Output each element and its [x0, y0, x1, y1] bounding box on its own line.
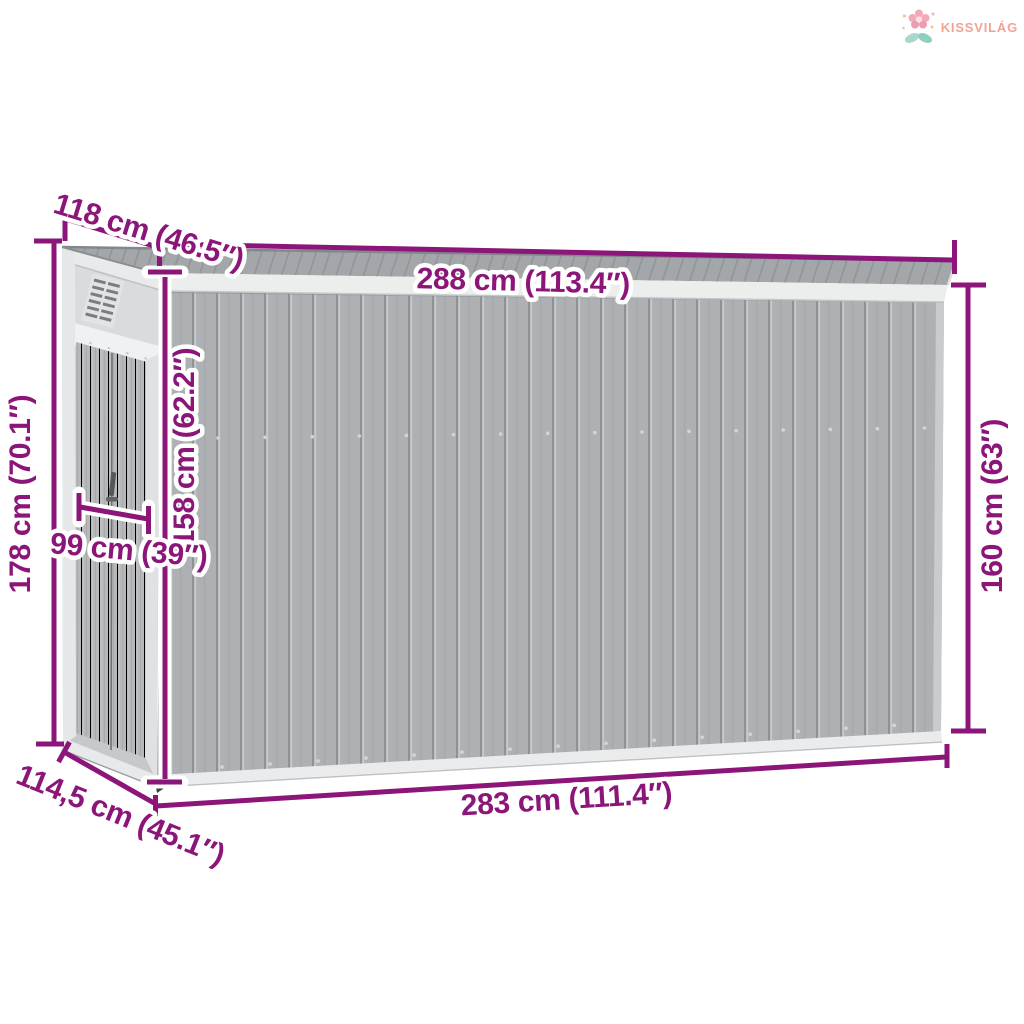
brand-name: KISSVILÁG: [941, 20, 1018, 35]
dimension-label-back-height: 178 cm (70.1″): [4, 395, 37, 594]
brand-logo: KISSVILÁG: [900, 8, 1018, 46]
dimension-back-height: [34, 241, 64, 744]
product-image: 118 cm (46.5″) 288 cm (113.4″) 178 cm (7…: [0, 0, 1024, 1024]
dimension-label-roof-width: 288 cm (113.4″): [416, 262, 630, 301]
front-wall: [157, 290, 944, 778]
dimension-label-front-height: 160 cm (63″): [976, 419, 1009, 593]
brand-flower-icon: [900, 8, 936, 46]
shed-dimension-diagram: 118 cm (46.5″) 288 cm (113.4″) 178 cm (7…: [0, 0, 1024, 1024]
front-wall-face: [157, 290, 944, 778]
dimension-label-inner-height: 158 cm (62.2″): [168, 348, 201, 547]
